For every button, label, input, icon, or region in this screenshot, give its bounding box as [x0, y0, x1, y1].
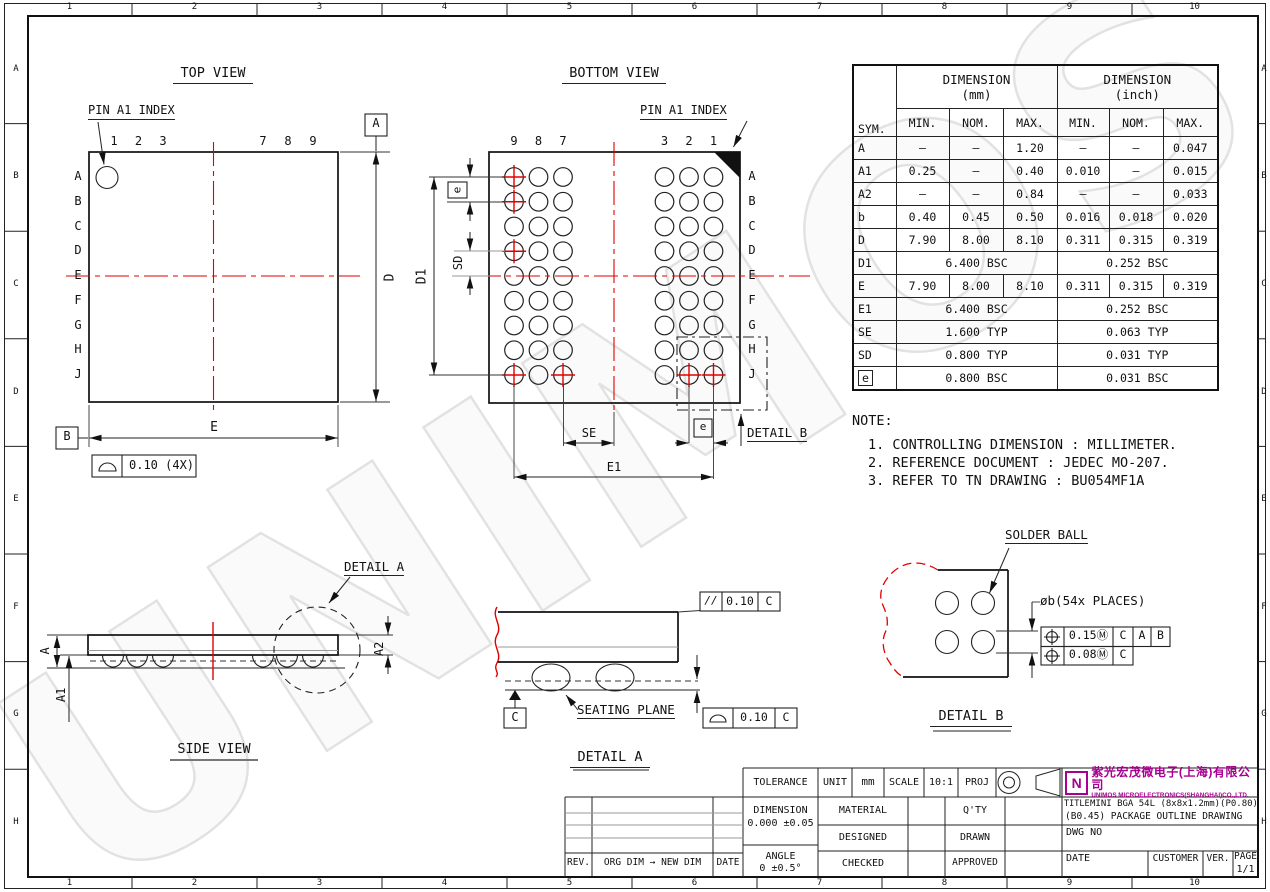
table-row: b0.400.450.500.0160.0180.020: [853, 206, 1218, 229]
solder-ball: [655, 291, 674, 310]
seating-plane-symbol: [710, 715, 726, 722]
value-cell: 0.010: [1057, 160, 1109, 183]
zone-row-label-right: H: [1256, 817, 1270, 827]
value-cell: 0.031 BSC: [1057, 367, 1218, 391]
zone-row-label-left: H: [8, 817, 24, 827]
bottom-view-row-label: G: [744, 319, 760, 333]
solder-ball: [972, 631, 995, 654]
approved-label: APPROVED: [945, 858, 1005, 869]
bottom-view-col-label: 8: [531, 135, 547, 149]
seating-plane-symbol: [99, 463, 116, 471]
solder-ball: [936, 592, 959, 615]
top-view-row-label: C: [70, 220, 86, 234]
solder-ball: [680, 217, 699, 236]
solder-ball: [529, 192, 548, 211]
value-cell: 0.319: [1163, 275, 1218, 298]
pin-a1-index-triangle: [714, 152, 740, 178]
drawn-label: DRAWN: [945, 832, 1005, 844]
solder-ball: [529, 291, 548, 310]
zone-col-label-top: 3: [311, 2, 329, 12]
solder-ball: [655, 217, 674, 236]
zone-col-label-top: 6: [686, 2, 704, 12]
value-cell: —: [1057, 183, 1109, 206]
zone-row-label-left: E: [8, 494, 24, 504]
detail-b-title: DETAIL B: [930, 709, 1012, 727]
solder-ball: [596, 664, 634, 691]
sym-cell: E1: [853, 298, 896, 321]
sym-cell: A2: [853, 183, 896, 206]
value-cell: —: [1057, 137, 1109, 160]
col-header-inch: DIMENSION(inch): [1057, 65, 1218, 109]
solder-ball: [680, 341, 699, 360]
solder-ball: [505, 341, 524, 360]
top-view-col-label: 7: [255, 135, 271, 149]
zone-col-label-bottom: 9: [1061, 878, 1079, 888]
value-cell: —: [896, 183, 949, 206]
zone-col-label-bottom: 1: [61, 878, 79, 888]
value-cell: 8.10: [1003, 229, 1057, 252]
bottom-view-title: BOTTOM VIEW: [562, 66, 666, 84]
seating-flatness-value: 0.10: [733, 711, 775, 724]
parallelism-datum: C: [758, 595, 780, 608]
col-subheader: MIN.: [1057, 109, 1109, 137]
zone-col-label-bottom: 4: [436, 878, 454, 888]
dim-label-a2: A2: [373, 637, 387, 661]
datum-c-label: C: [504, 711, 526, 725]
solder-ball: [655, 192, 674, 211]
value-cell: 7.90: [896, 229, 949, 252]
sym-cell: D: [853, 229, 896, 252]
value-cell: 6.400 BSC: [896, 298, 1057, 321]
col-subheader: NOM.: [949, 109, 1003, 137]
solder-ball: [505, 217, 524, 236]
value-cell: 0.047: [1163, 137, 1218, 160]
top-view-col-label: 9: [305, 135, 321, 149]
solder-ball: [554, 217, 573, 236]
position-tolerance-1: 0.15Ⓜ: [1064, 629, 1113, 642]
scale-label: SCALE: [884, 777, 924, 789]
table-row: SE1.600 TYP0.063 TYP: [853, 321, 1218, 344]
note-item: 1. CONTROLLING DIMENSION : MILLIMETER.: [868, 438, 1177, 454]
designed-label: DESIGNED: [818, 832, 908, 844]
value-cell: 0.311: [1057, 275, 1109, 298]
col-header-sym: SYM.: [853, 65, 896, 137]
value-cell: 0.40: [1003, 160, 1057, 183]
qty-label: Q'TY: [945, 805, 1005, 817]
checked-label: CHECKED: [818, 858, 908, 870]
dim-label-e-bottom: e: [694, 421, 712, 434]
top-view-title: TOP VIEW: [173, 66, 253, 84]
mmc-modifier: Ⓜ: [1097, 647, 1109, 661]
solder-ball: [529, 341, 548, 360]
value-cell: 1.600 TYP: [896, 321, 1057, 344]
datum-c-triangle: [509, 690, 521, 700]
value-cell: 0.315: [1109, 275, 1163, 298]
top-view-row-label: G: [70, 319, 86, 333]
value-cell: —: [1109, 137, 1163, 160]
page-label: PAGE: [1233, 852, 1258, 863]
table-row: E16.400 BSC0.252 BSC: [853, 298, 1218, 321]
solder-ball: [704, 217, 723, 236]
sym-cell: e: [853, 367, 896, 391]
col-header-mm: DIMENSION(mm): [896, 65, 1057, 109]
zone-col-label-bottom: 7: [811, 878, 829, 888]
fcf1-datum-a: A: [1133, 629, 1151, 642]
top-view-row-label: B: [70, 195, 86, 209]
zone-col-label-bottom: 8: [936, 878, 954, 888]
zone-col-label-top: 7: [811, 2, 829, 12]
top-view-col-label: 3: [155, 135, 171, 149]
value-cell: 0.020: [1163, 206, 1218, 229]
solder-ball: [505, 291, 524, 310]
top-view-row-label: D: [70, 244, 86, 258]
dim-label-e1: E1: [598, 461, 630, 475]
bottom-view-row-label: H: [744, 343, 760, 357]
solder-ball: [505, 316, 524, 335]
value-cell: 0.315: [1109, 229, 1163, 252]
dim-label-se: SE: [574, 427, 604, 441]
solder-ball: [529, 366, 548, 385]
drawing-title-line1: MINI BGA 54L (8x8x1.2mm)(P0.80): [1090, 799, 1258, 809]
solder-ball: [655, 316, 674, 335]
solder-ball: [655, 242, 674, 261]
seating-plane-label: SEATING PLANE: [577, 703, 675, 719]
solder-ball: [704, 242, 723, 261]
table-row: D16.400 BSC0.252 BSC: [853, 252, 1218, 275]
solder-ball: [554, 316, 573, 335]
notes-title: NOTE:: [852, 414, 893, 430]
solder-ball: [532, 664, 570, 691]
value-cell: —: [949, 160, 1003, 183]
top-view-row-label: E: [70, 269, 86, 283]
bottom-view-row-label: A: [744, 170, 760, 184]
bottom-view-row-label: E: [744, 269, 760, 283]
material-label: MATERIAL: [818, 805, 908, 817]
tolerance-label: TOLERANCE: [743, 777, 818, 789]
dim-label-d1: D1: [416, 264, 431, 288]
ball-diameter-label: øb(54x PLACES): [1040, 594, 1145, 608]
top-view-col-label: 8: [280, 135, 296, 149]
sym-cell: SD: [853, 344, 896, 367]
logo-mark-icon: N: [1065, 771, 1088, 795]
bottom-view-col-label: 1: [706, 135, 722, 149]
value-cell: 1.20: [1003, 137, 1057, 160]
value-cell: 0.031 TYP: [1057, 344, 1218, 367]
dim-label-e-left: e: [450, 181, 466, 200]
zone-row-label-left: C: [8, 279, 24, 289]
page-value: 1/1: [1233, 864, 1258, 876]
solder-ball: [680, 168, 699, 187]
top-view-pin-a1-label: PIN A1 INDEX: [88, 104, 175, 120]
value-cell: —: [1109, 183, 1163, 206]
table-row: e0.800 BSC0.031 BSC: [853, 367, 1218, 391]
sym-cell: A1: [853, 160, 896, 183]
zone-col-label-top: 1: [61, 2, 79, 12]
bottom-view-row-label: C: [744, 220, 760, 234]
parallelism-symbol: //: [700, 595, 722, 608]
bottom-view-row-label: B: [744, 195, 760, 209]
proj-label: PROJ: [958, 777, 996, 789]
bottom-view-pin-a1-label: PIN A1 INDEX: [640, 104, 727, 120]
fcf1-datum-b: B: [1151, 629, 1170, 642]
zone-row-label-left: D: [8, 387, 24, 397]
top-view-row-label: A: [70, 170, 86, 184]
solder-ball: [704, 316, 723, 335]
zone-row-label-left: F: [8, 602, 24, 612]
dim-label-e: E: [200, 421, 228, 436]
solder-ball: [529, 217, 548, 236]
scale-value: 10:1: [924, 777, 958, 789]
torn-edge: [881, 563, 938, 677]
sym-cell: b: [853, 206, 896, 229]
drawing-title-line2: (B0.45) PACKAGE OUTLINE DRAWING: [1065, 812, 1242, 823]
table-row: A——1.20——0.047: [853, 137, 1218, 160]
value-cell: 0.50: [1003, 206, 1057, 229]
value-cell: —: [896, 137, 949, 160]
sym-cell: E: [853, 275, 896, 298]
zone-row-label-right: F: [1256, 602, 1270, 612]
value-cell: 0.319: [1163, 229, 1218, 252]
value-cell: 0.25: [896, 160, 949, 183]
solder-ball: [655, 168, 674, 187]
title-label: TITLE: [1064, 800, 1090, 810]
solder-ball: [680, 192, 699, 211]
detail-b-callout: DETAIL B: [747, 426, 807, 442]
zone-row-label-right: C: [1256, 279, 1270, 289]
seating-flatness-datum: C: [775, 711, 797, 724]
top-view-row-label: H: [70, 343, 86, 357]
value-cell: 0.800 TYP: [896, 344, 1057, 367]
value-cell: 0.800 BSC: [896, 367, 1057, 391]
table-row: E7.908.008.100.3110.3150.319: [853, 275, 1218, 298]
sym-cell: D1: [853, 252, 896, 275]
value-cell: 0.40: [896, 206, 949, 229]
date-label: DATE: [1066, 853, 1090, 865]
value-cell: 0.018: [1109, 206, 1163, 229]
solder-ball-label: SOLDER BALL: [1005, 528, 1088, 544]
value-cell: —: [1109, 160, 1163, 183]
break-line: [495, 607, 498, 677]
drawing-sheet: UNIMOS: [0, 0, 1270, 892]
parallelism-value: 0.10: [722, 595, 758, 608]
ver-label: VER.: [1203, 854, 1233, 865]
zone-col-label-bottom: 5: [561, 878, 579, 888]
datum-a-label: A: [365, 117, 387, 131]
solder-ball: [554, 168, 573, 187]
zone-row-label-left: G: [8, 709, 24, 719]
detail-a-callout: DETAIL A: [344, 560, 404, 576]
value-cell: 8.10: [1003, 275, 1057, 298]
zone-col-label-bottom: 6: [686, 878, 704, 888]
zone-col-label-top: 5: [561, 2, 579, 12]
note-item: 3. REFER TO TN DRAWING : BU054MF1A: [868, 474, 1144, 490]
value-cell: 0.252 BSC: [1057, 252, 1218, 275]
solder-ball: [655, 341, 674, 360]
solder-ball: [680, 291, 699, 310]
projection-symbol: [998, 769, 1060, 796]
table-row: A10.25—0.400.010—0.015: [853, 160, 1218, 183]
zone-col-label-bottom: 3: [311, 878, 329, 888]
solder-ball: [529, 242, 548, 261]
dimension-tol-label: DIMENSION: [743, 805, 818, 817]
angle-tol-value: 0 ±0.5°: [743, 863, 818, 875]
zone-col-label-top: 4: [436, 2, 454, 12]
value-cell: 0.311: [1057, 229, 1109, 252]
zone-col-label-bottom: 2: [186, 878, 204, 888]
dim-label-d: D: [384, 268, 399, 286]
fcf2-datum-c: C: [1113, 648, 1133, 661]
solder-ball: [655, 366, 674, 385]
customer-label: CUSTOMER: [1148, 854, 1203, 865]
detail-a-title: DETAIL A: [570, 750, 650, 768]
value: 0.15: [1069, 628, 1097, 642]
col-subheader: MAX.: [1163, 109, 1218, 137]
zone-row-label-right: D: [1256, 387, 1270, 397]
org-dim-label: ORG DIM → NEW DIM: [592, 858, 713, 869]
value-cell: —: [949, 183, 1003, 206]
solder-ball: [529, 168, 548, 187]
sym-cell: SE: [853, 321, 896, 344]
solder-ball: [704, 168, 723, 187]
value-cell: 8.00: [949, 229, 1003, 252]
bottom-view-col-label: 3: [657, 135, 673, 149]
company-logo: N 紫光宏茂微电子(上海)有限公司 UNIMOS MICROELECTRONIC…: [1065, 770, 1257, 796]
bottom-view-col-label: 2: [681, 135, 697, 149]
solder-ball: [554, 192, 573, 211]
value-cell: 0.84: [1003, 183, 1057, 206]
value-cell: 0.016: [1057, 206, 1109, 229]
zone-col-label-top: 10: [1186, 2, 1204, 12]
table-row: A2——0.84——0.033: [853, 183, 1218, 206]
table-row: SD0.800 TYP0.031 TYP: [853, 344, 1218, 367]
bottom-view-col-label: 9: [506, 135, 522, 149]
value-cell: 0.063 TYP: [1057, 321, 1218, 344]
value: 0.08: [1069, 647, 1097, 661]
mmc-modifier: Ⓜ: [1097, 628, 1109, 642]
solder-ball: [680, 242, 699, 261]
value-cell: 0.45: [949, 206, 1003, 229]
solder-ball: [529, 316, 548, 335]
bottom-view-row-label: D: [744, 244, 760, 258]
dwg-no-label: DWG NO: [1066, 827, 1102, 839]
value-cell: 0.252 BSC: [1057, 298, 1218, 321]
position-tolerance-2: 0.08Ⓜ: [1064, 648, 1113, 661]
unit-value: mm: [852, 776, 884, 789]
rev-date-label: DATE: [713, 858, 743, 869]
solder-ball: [704, 291, 723, 310]
top-view-col-label: 2: [131, 135, 147, 149]
solder-ball: [936, 631, 959, 654]
value-cell: —: [949, 137, 1003, 160]
rev-label: REV.: [565, 858, 592, 869]
zone-col-label-top: 9: [1061, 2, 1079, 12]
solder-ball: [554, 242, 573, 261]
zone-col-label-top: 8: [936, 2, 954, 12]
zone-row-label-right: G: [1256, 709, 1270, 719]
value-cell: 6.400 BSC: [896, 252, 1057, 275]
dimension-table: SYM.DIMENSION(mm)DIMENSION(inch)MIN.NOM.…: [852, 64, 1219, 391]
dim-label-a: A: [39, 641, 53, 661]
solder-ball: [680, 316, 699, 335]
logo-company-name-cn: 紫光宏茂微电子(上海)有限公司: [1091, 766, 1257, 792]
top-view-col-label: 1: [106, 135, 122, 149]
solder-ball: [704, 192, 723, 211]
bottom-view-col-label: 7: [555, 135, 571, 149]
dim-label-sd: SD: [452, 251, 466, 275]
angle-tol-label: ANGLE: [743, 851, 818, 863]
sym-cell: A: [853, 137, 896, 160]
side-view-title: SIDE VIEW: [170, 742, 258, 761]
solder-ball: [972, 592, 995, 615]
value-cell: 0.015: [1163, 160, 1218, 183]
datum-b-label: B: [56, 430, 78, 444]
solder-ball: [554, 341, 573, 360]
solder-ball: [554, 291, 573, 310]
table-row: D7.908.008.100.3110.3150.319: [853, 229, 1218, 252]
col-subheader: NOM.: [1109, 109, 1163, 137]
dim-label-a1: A1: [55, 683, 69, 707]
solder-ball: [704, 341, 723, 360]
pin-a1-index-circle: [96, 167, 118, 189]
col-subheader: MIN.: [896, 109, 949, 137]
fcf1-datum-c: C: [1113, 629, 1133, 642]
dimension-tol-value: 0.000 ±0.05: [743, 818, 818, 830]
top-view-row-label: F: [70, 294, 86, 308]
top-view-row-label: J: [70, 368, 86, 382]
bottom-view-row-label: F: [744, 294, 760, 308]
value-cell: 7.90: [896, 275, 949, 298]
value-cell: 0.033: [1163, 183, 1218, 206]
zone-row-label-left: A: [8, 64, 24, 74]
unit-label: UNIT: [818, 777, 852, 789]
zone-row-label-right: A: [1256, 64, 1270, 74]
note-item: 2. REFERENCE DOCUMENT : JEDEC MO-207.: [868, 456, 1169, 472]
col-subheader: MAX.: [1003, 109, 1057, 137]
zone-row-label-right: B: [1256, 171, 1270, 181]
zone-col-label-top: 2: [186, 2, 204, 12]
zone-row-label-right: E: [1256, 494, 1270, 504]
flatness-value: 0.10 (4X): [129, 459, 194, 473]
zone-col-label-bottom: 10: [1186, 878, 1204, 888]
logo-company-name-en: UNIMOS MICROELECTRONICS(SHANGHAI)CO.,LTD…: [1091, 792, 1257, 800]
bottom-view-row-label: J: [744, 368, 760, 382]
value-cell: 8.00: [949, 275, 1003, 298]
zone-row-label-left: B: [8, 171, 24, 181]
